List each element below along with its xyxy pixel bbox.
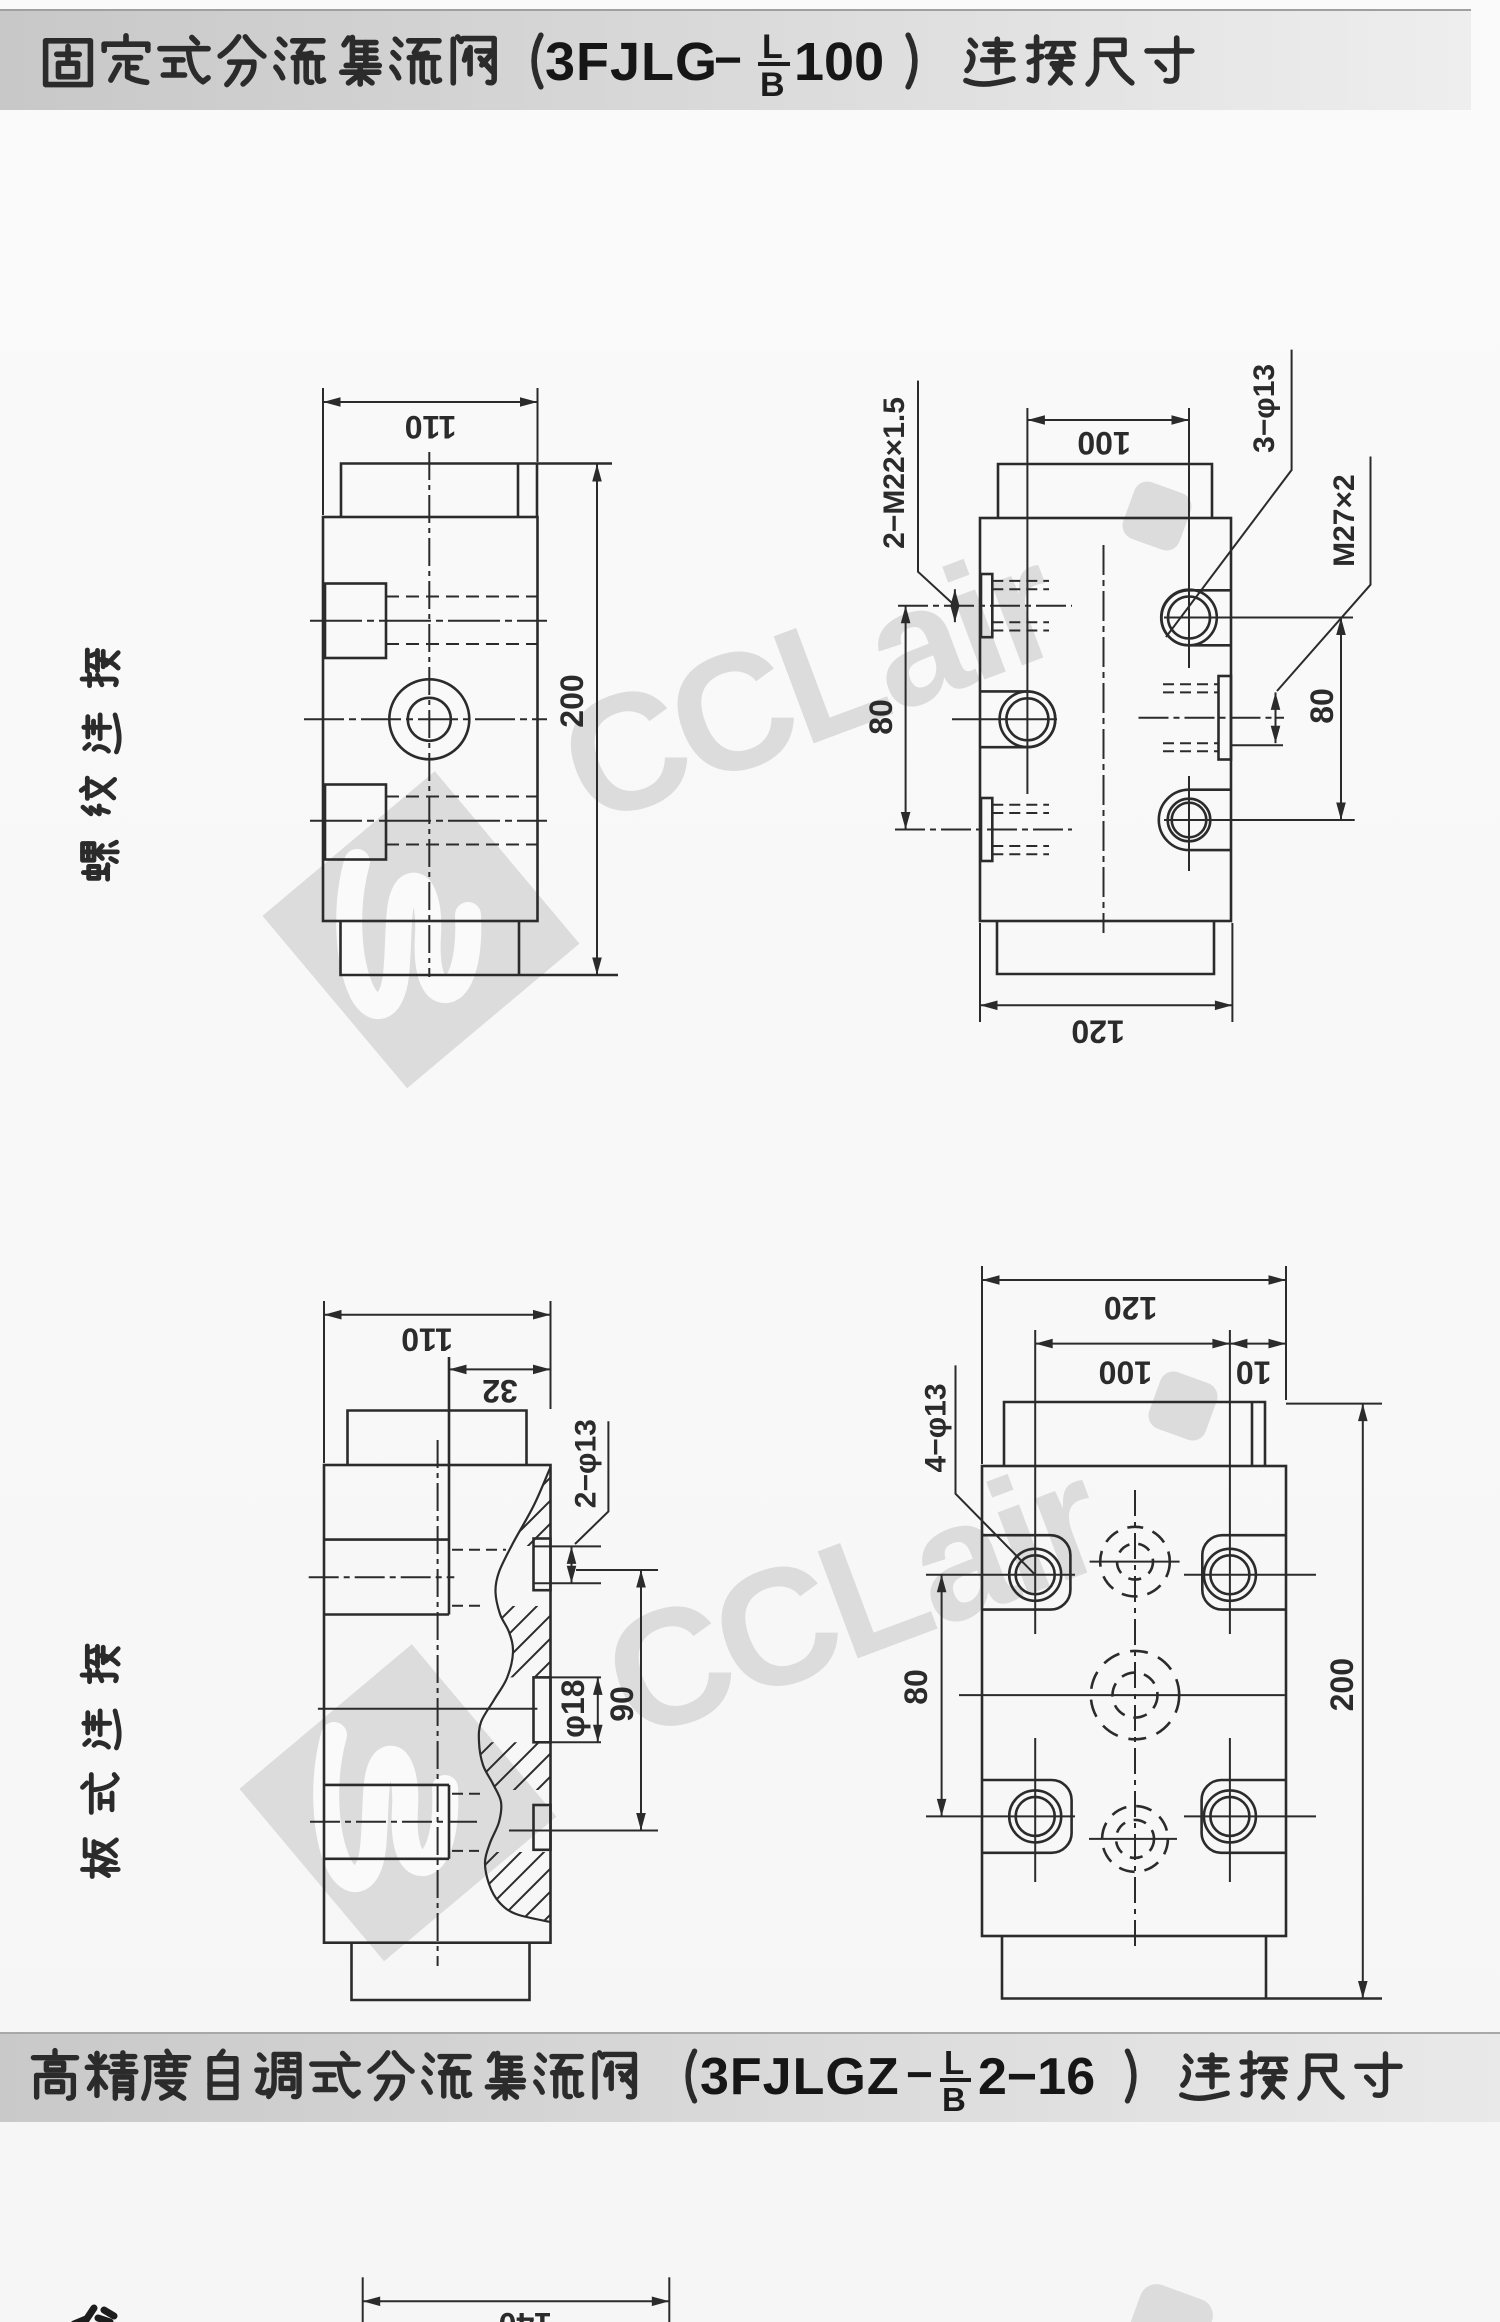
svg-text:−: − (906, 2048, 933, 2100)
svg-text:32: 32 (482, 1373, 518, 1409)
svg-text:100: 100 (794, 32, 884, 92)
svg-text:80: 80 (863, 699, 899, 735)
svg-text:200: 200 (554, 674, 590, 727)
svg-text:100: 100 (1099, 1354, 1152, 1390)
svg-text:3FJLGZ: 3FJLGZ (700, 2048, 900, 2106)
svg-text:2−16: 2−16 (978, 2048, 1095, 2106)
svg-text:200: 200 (1324, 1658, 1360, 1711)
svg-text:10: 10 (1236, 1354, 1272, 1390)
svg-text:100: 100 (1077, 425, 1130, 461)
svg-text:L: L (762, 28, 783, 66)
svg-text:120: 120 (1071, 1014, 1124, 1050)
svg-text:80: 80 (1304, 688, 1340, 724)
svg-text:L: L (944, 2044, 964, 2081)
svg-text:3FJLG: 3FJLG (545, 32, 718, 92)
svg-text:80: 80 (898, 1669, 934, 1705)
svg-text:M27×2: M27×2 (1328, 474, 1361, 567)
svg-text:2−M22×1.5: 2−M22×1.5 (878, 397, 911, 549)
svg-text:2−φ13: 2−φ13 (569, 1419, 602, 1508)
svg-text:B: B (942, 2081, 966, 2118)
svg-text:4−φ13: 4−φ13 (920, 1383, 953, 1472)
svg-text:φ18: φ18 (555, 1679, 591, 1737)
svg-text:120: 120 (1104, 1290, 1157, 1326)
svg-text:CCLair: CCLair (538, 508, 1083, 861)
svg-text:B: B (760, 66, 785, 104)
svg-text:90: 90 (604, 1686, 640, 1722)
svg-text:110: 110 (401, 1322, 453, 1358)
svg-text:110: 110 (405, 409, 457, 445)
svg-text:3−φ13: 3−φ13 (1248, 364, 1281, 453)
svg-text:−: − (714, 34, 742, 87)
svg-text:140: 140 (499, 2306, 552, 2322)
